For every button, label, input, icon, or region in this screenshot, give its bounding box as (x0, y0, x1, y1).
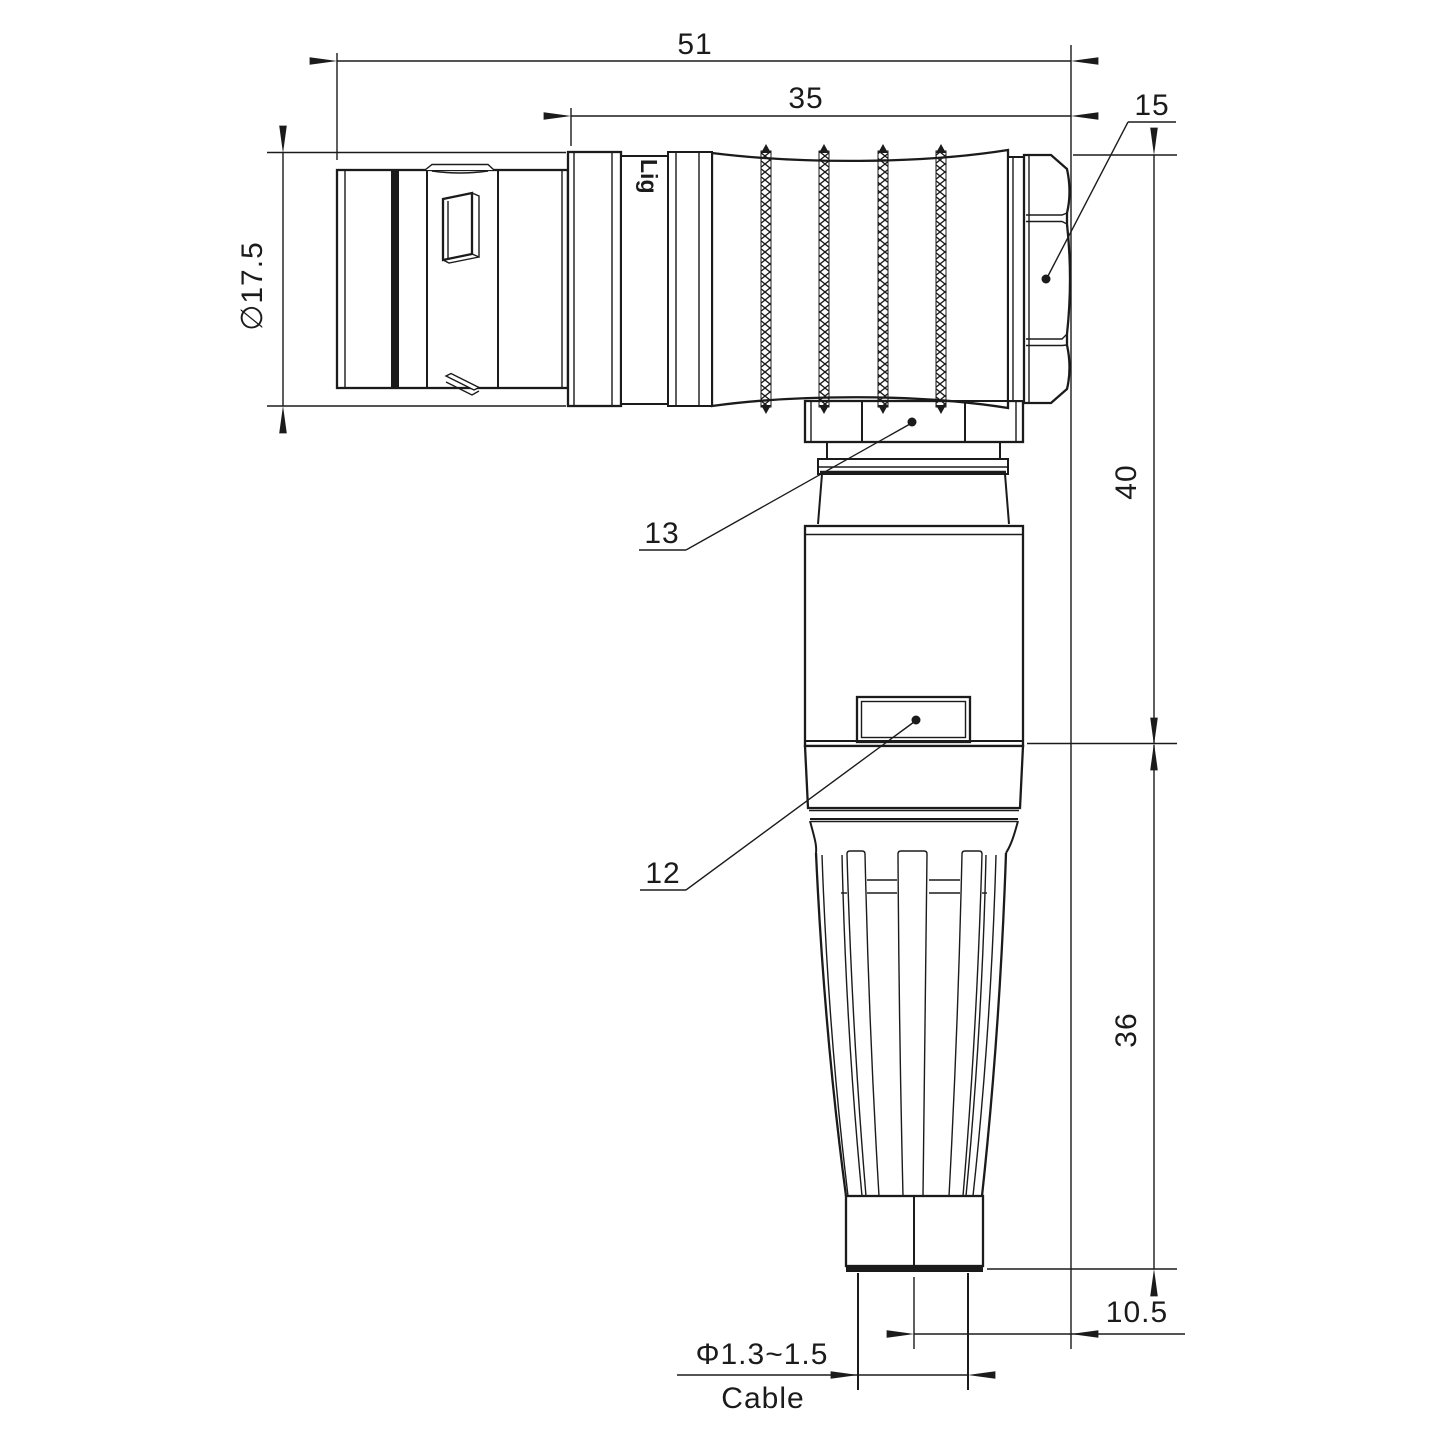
svg-text:51: 51 (677, 28, 712, 61)
svg-text:Φ1.3~1.5: Φ1.3~1.5 (696, 1338, 829, 1371)
dim-overall-length: 51 (337, 28, 1071, 160)
knurl-band (761, 144, 771, 414)
callout-dot (908, 418, 917, 427)
svg-text:10.5: 10.5 (1106, 1296, 1168, 1329)
cable (858, 1273, 968, 1390)
neck-right-edge (1005, 474, 1009, 524)
technical-drawing-page: Lightang (0, 0, 1440, 1440)
svg-text:36: 36 (1110, 1012, 1143, 1047)
svg-text:15: 15 (1134, 89, 1169, 122)
latch-bump (425, 165, 494, 171)
plug-flange (568, 152, 621, 406)
callout-dot (1042, 275, 1051, 284)
knurled-grip (712, 144, 1023, 414)
svg-text:40: 40 (1110, 464, 1143, 499)
svg-text:13: 13 (644, 517, 679, 550)
front-plug: Lig (337, 152, 712, 406)
back-hex-nut (1008, 155, 1070, 403)
dim-cable-diameter: Φ1.3~1.5 Cable (677, 1338, 968, 1415)
svg-text:∅17.5: ∅17.5 (236, 241, 269, 331)
connector-technical-drawing: Lightang (0, 0, 1440, 1440)
knurl-band (878, 144, 888, 414)
part-marking-text: Lig (636, 159, 662, 194)
strain-relief-collar (805, 746, 1023, 808)
dim-grip-length: 35 (571, 82, 1071, 146)
knurl-band (936, 144, 946, 414)
svg-text:35: 35 (788, 82, 823, 115)
strain-relief-ribs (816, 848, 1006, 1197)
svg-text:12: 12 (645, 857, 680, 890)
knurl-band (819, 144, 829, 414)
plug-ring (668, 152, 712, 406)
callout-dot (912, 716, 921, 725)
cable-label: Cable (721, 1382, 804, 1415)
connector-lower-stack (805, 442, 1023, 1390)
dim-side-offset: 10.5 (914, 1277, 1185, 1349)
neck-left-edge (818, 474, 822, 524)
dim-lower-height: 36 (987, 745, 1177, 1269)
